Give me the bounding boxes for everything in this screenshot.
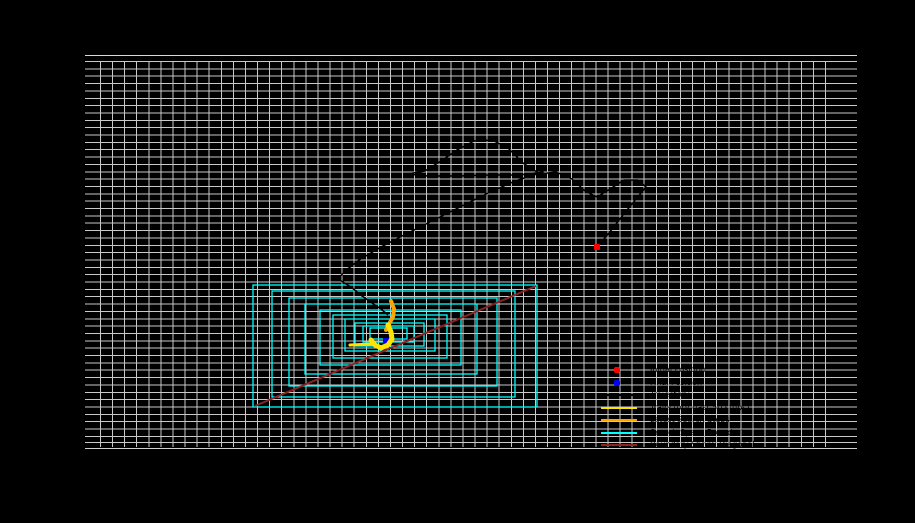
legend-item-trajectory: Trajectory: [598, 389, 768, 402]
legend: Initial Position Final Position Trajecto…: [598, 364, 768, 452]
final-position-legend-marker-icon: [614, 380, 620, 386]
initial-position-legend-marker-icon: [614, 367, 620, 373]
legend-item-latest-steps: Latest Search Steps: [598, 414, 768, 427]
latest-steps-legend-marker-icon: [601, 419, 637, 421]
legend-label: Boundary Shrink Diagonal: [650, 441, 754, 449]
legend-label: Trajectory (last 50 steps): [650, 404, 749, 412]
trajectory-legend-marker-icon: [601, 394, 637, 396]
legend-item-search-boundaries: Search Space Boundaries: [598, 427, 768, 440]
legend-item-boundary-diagonal: Boundary Shrink Diagonal: [598, 439, 768, 452]
figure: Initial Position Final Position Trajecto…: [0, 0, 915, 523]
legend-label: Search Space Boundaries: [650, 429, 752, 437]
legend-label: Trajectory: [650, 391, 690, 399]
legend-item-initial-position: Initial Position: [598, 364, 768, 377]
legend-label: Latest Search Steps: [650, 416, 730, 424]
search-boundaries-legend-marker-icon: [601, 432, 637, 434]
legend-item-final-position: Final Position: [598, 377, 768, 390]
legend-item-trajectory-recent: Trajectory (last 50 steps): [598, 402, 768, 415]
trajectory-recent-legend-marker-icon: [601, 407, 637, 409]
legend-label: Final Position: [650, 379, 702, 387]
boundary-diagonal-legend-marker-icon: [601, 444, 637, 446]
legend-label: Initial Position: [650, 366, 706, 374]
